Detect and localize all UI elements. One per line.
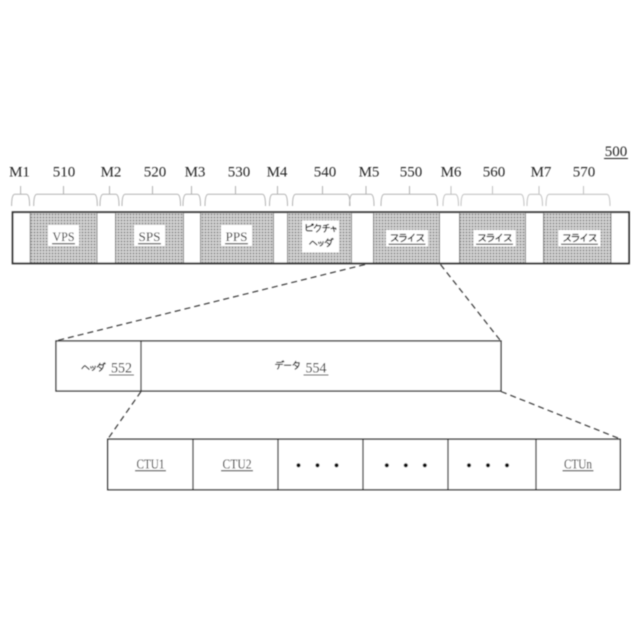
- svg-text:500: 500: [605, 144, 628, 160]
- svg-text:552: 552: [111, 361, 132, 377]
- svg-text:520: 520: [144, 165, 167, 181]
- svg-text:550: 550: [400, 165, 423, 181]
- svg-text:CTU2: CTU2: [223, 458, 252, 473]
- svg-text:M1: M1: [9, 165, 30, 181]
- svg-text:560: 560: [483, 165, 506, 181]
- svg-text:SPS: SPS: [139, 229, 161, 244]
- svg-text:M3: M3: [185, 165, 206, 181]
- svg-text:PPS: PPS: [226, 229, 248, 244]
- svg-text:540: 540: [314, 165, 337, 181]
- svg-text:CTU1: CTU1: [137, 458, 165, 473]
- svg-text:M7: M7: [531, 165, 552, 181]
- svg-text:M6: M6: [441, 165, 462, 181]
- svg-text:M5: M5: [359, 165, 380, 181]
- svg-text:570: 570: [573, 165, 596, 181]
- svg-text:530: 530: [228, 165, 251, 181]
- svg-text:CTUn: CTUn: [564, 458, 592, 473]
- svg-text:554: 554: [306, 361, 327, 377]
- svg-text:M4: M4: [267, 165, 288, 181]
- svg-text:VPS: VPS: [53, 229, 75, 244]
- svg-text:M2: M2: [101, 165, 122, 181]
- svg-text:510: 510: [53, 165, 76, 181]
